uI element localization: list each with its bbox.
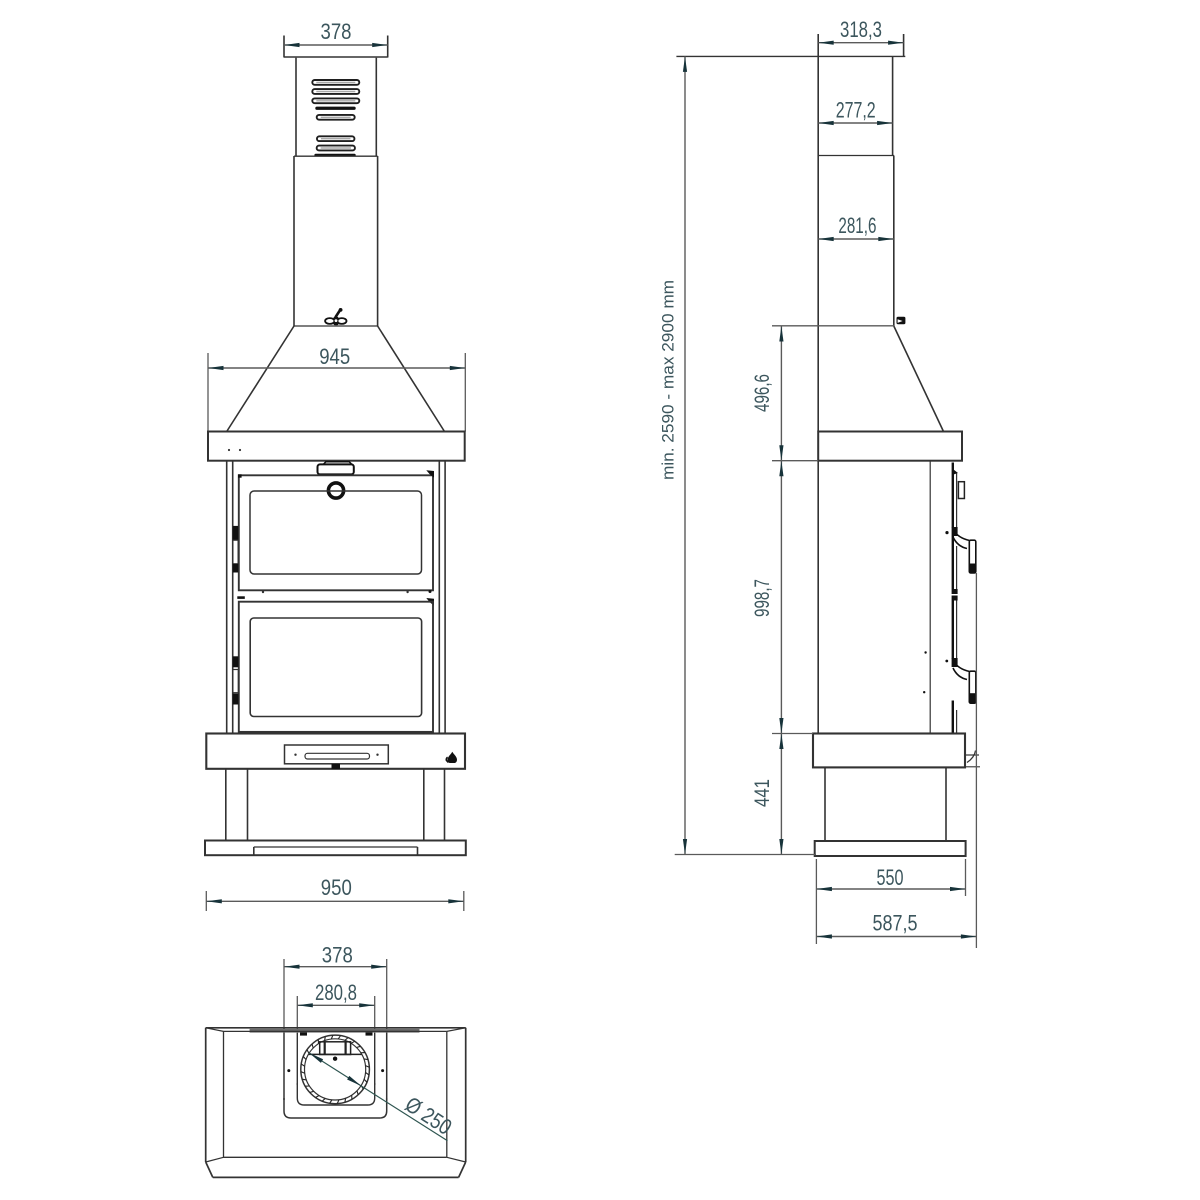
svg-text:378: 378 xyxy=(321,19,352,44)
svg-text:587,5: 587,5 xyxy=(873,911,918,936)
svg-text:550: 550 xyxy=(877,865,904,890)
svg-text:496,6: 496,6 xyxy=(751,374,774,412)
svg-text:441: 441 xyxy=(751,779,774,807)
svg-text:280,8: 280,8 xyxy=(315,980,357,1005)
svg-text:945: 945 xyxy=(319,344,350,369)
svg-text:281,6: 281,6 xyxy=(838,213,876,238)
svg-text:378: 378 xyxy=(322,943,353,968)
svg-text:950: 950 xyxy=(321,875,352,900)
svg-text:318,3: 318,3 xyxy=(840,17,882,42)
svg-text:min. 2590 - max 2900 mm: min. 2590 - max 2900 mm xyxy=(659,280,678,480)
svg-text:998,7: 998,7 xyxy=(751,579,774,617)
svg-text:277,2: 277,2 xyxy=(836,98,876,123)
